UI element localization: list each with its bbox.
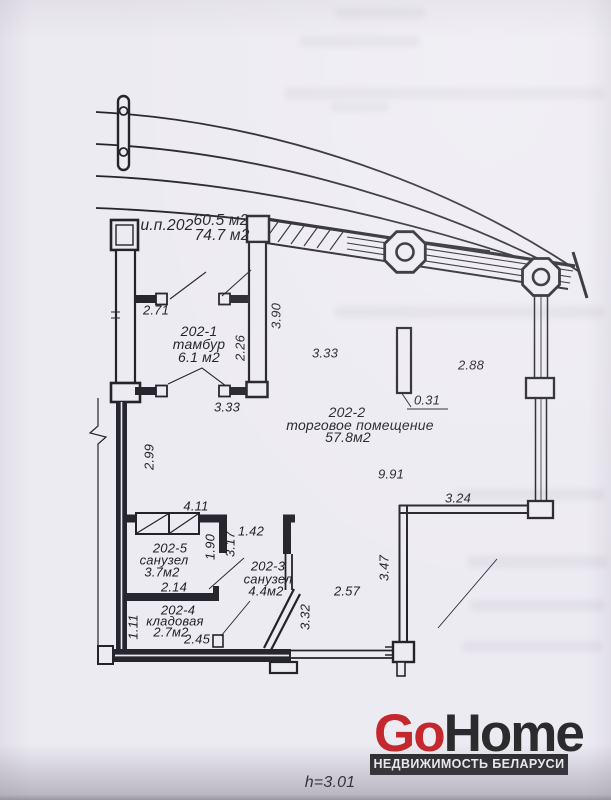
dim-2.26: 2.26 [233,335,248,361]
room-202-3-area: 4.4м2 [248,584,283,599]
window-band [252,217,587,298]
room-202-2-area: 57.8м2 [325,429,371,445]
dim-3.24: 3.24 [445,491,471,506]
column-symbol [523,259,560,296]
dim-3.32: 3.32 [298,604,313,630]
dim-3.17: 3.17 [223,531,238,557]
dim-3.33-tambour: 3.33 [214,400,240,415]
room-202-1-area: 6.1 м2 [178,349,220,365]
column-symbol [118,96,129,170]
dim-2.57: 2.57 [334,584,360,599]
tambour-east-wall [247,216,270,397]
room-202-5-area: 3.7м2 [144,565,179,580]
scanned-floorplan-page: и.п.202 60.5 м2 74.7 м2 202-1 тамбур 6.1… [0,0,611,800]
dim-2.99: 2.99 [142,444,157,470]
floorplan-walls-drawing [0,0,611,800]
dim-9.91: 9.91 [378,467,404,482]
south-east-walls [385,505,528,676]
west-wall [90,220,140,650]
dim-2.88: 2.88 [458,358,484,373]
dim-3.33-room: 3.33 [312,346,338,361]
dim-2.14: 2.14 [161,580,187,595]
column-symbol [385,232,426,273]
door-opening-lower [135,368,247,397]
wall-break-symbol [90,398,106,650]
dim-3.47: 3.47 [377,555,392,581]
ceiling-height-label: h=3.01 [305,774,356,792]
dim-2.71: 2.71 [143,303,169,318]
unit-label: и.п.202 [140,217,193,235]
east-window-wall [526,296,554,518]
door-opening-upper [135,270,251,305]
area-label-bottom: 74.7 м2 [194,227,249,245]
dim-2.45: 2.45 [184,632,210,647]
dim-0.31: 0.31 [414,393,440,408]
brand-tagline: НЕДВИЖИМОСТЬ БЕЛАРУСИ [370,754,568,775]
dim-1.90: 1.90 [203,534,218,560]
dim-1.11: 1.11 [126,614,141,639]
south-wall [98,646,394,673]
dim-1.42: 1.42 [238,524,264,539]
brand-logo: GoHome [374,707,583,760]
dim-4.11: 4.11 [183,499,208,514]
dim-3.90: 3.90 [269,303,284,329]
